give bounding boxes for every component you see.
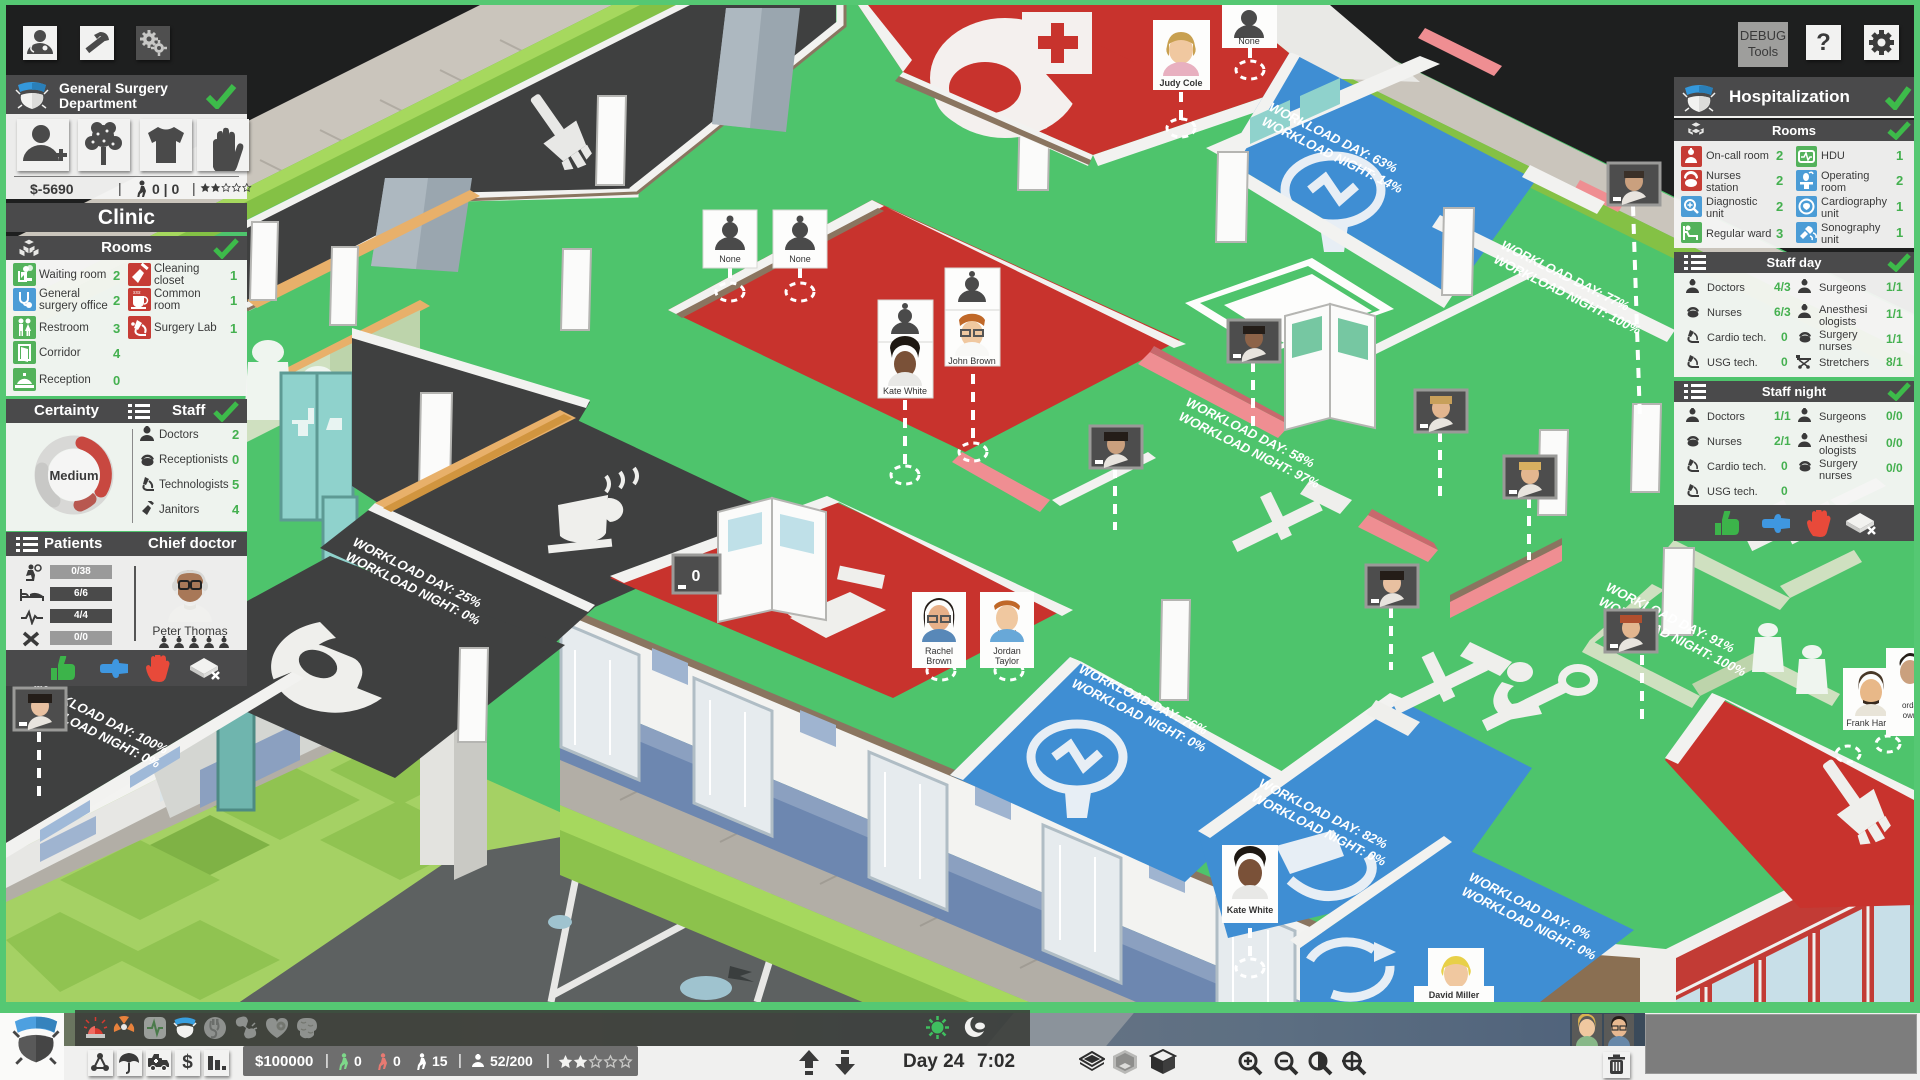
svg-text:None: None: [1238, 36, 1260, 46]
svg-text:Medium: Medium: [49, 468, 98, 483]
svg-text:0: 0: [692, 568, 701, 585]
svg-text:Kate White: Kate White: [1227, 905, 1274, 915]
svg-text:David Miller: David Miller: [1429, 990, 1480, 1000]
svg-text:None: None: [719, 254, 741, 264]
svg-text:John Brown: John Brown: [948, 356, 996, 366]
svg-text:Kate White: Kate White: [883, 386, 927, 396]
svg-text:Taylor: Taylor: [995, 656, 1019, 666]
svg-text:Jordan: Jordan: [993, 646, 1021, 656]
svg-text:Brown: Brown: [926, 656, 952, 666]
svg-text:Judy Cole: Judy Cole: [1159, 78, 1202, 88]
svg-text:None: None: [789, 254, 811, 264]
svg-text:Rachel: Rachel: [925, 646, 953, 656]
svg-text:sss: sss: [133, 290, 141, 296]
